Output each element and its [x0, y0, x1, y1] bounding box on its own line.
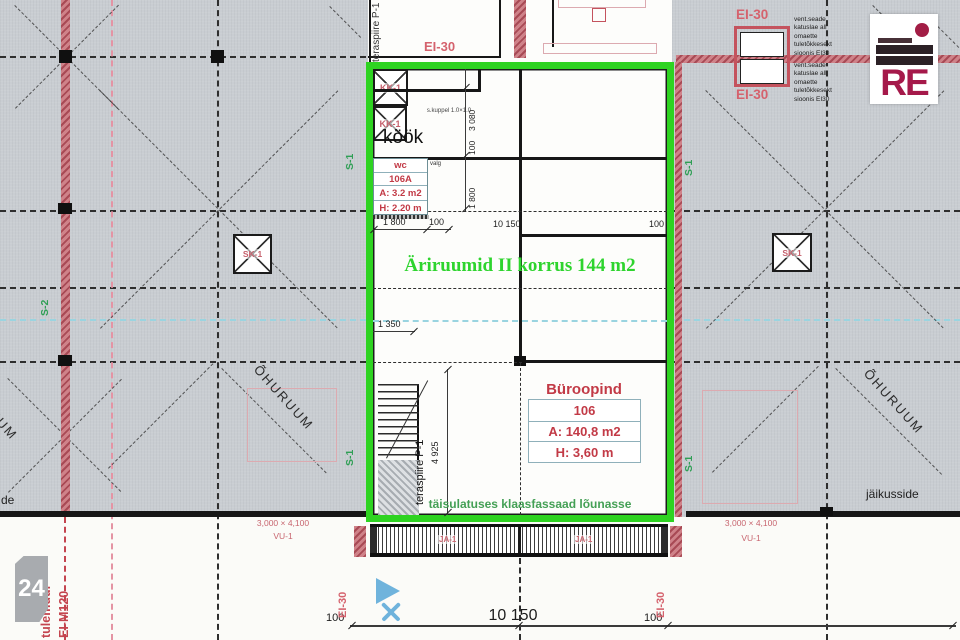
vent-note-line: tuletõkkesekt: [794, 87, 832, 95]
vent-note-line: katuslae all: [794, 24, 832, 32]
bracing-line: [329, 6, 361, 38]
facade-panel-label: JA-1: [574, 535, 593, 544]
facade-post: [370, 527, 377, 553]
utility-line-blue: [0, 319, 366, 321]
unit-data-box: 106 A: 140,8 m2 H: 3,60 m: [528, 399, 641, 463]
smoke-hatch-sk1: SK-1: [772, 233, 812, 272]
column: [211, 50, 224, 63]
staircase: [378, 384, 419, 515]
dimension-line: [373, 229, 451, 230]
facade-post: [661, 527, 668, 553]
vent-note: vent.seade katuslae all omaette tuletõkk…: [794, 62, 832, 104]
highlighted-unit: köök s.kuppel 1.0×1.0 KK-1 KK-1 wc 106A …: [366, 62, 674, 522]
axis-line-pink: [111, 0, 113, 640]
axis-line: [674, 210, 960, 212]
wall: [368, 56, 500, 58]
logo-bar: [878, 38, 912, 43]
fire-wall-rating: EI-M120: [58, 548, 71, 638]
facade-mullion: [518, 527, 521, 553]
smoke-hatch-sk1: SK-1: [233, 234, 272, 274]
bracing-line: [108, 363, 213, 468]
vent-note-line: omaette: [794, 79, 832, 87]
axis-label-s1: S-1: [684, 438, 695, 472]
railing-label: teraspiire P-1: [415, 387, 430, 505]
opening-outline: [702, 390, 798, 504]
company-logo: RE: [870, 14, 938, 104]
wc-label-box: wc 106A A: 3.2 m2 H: 2.20 m: [373, 158, 428, 215]
vent-note: vent.seade katuslae all omaette tuletõkk…: [794, 16, 832, 58]
sk1-label: SK-1: [781, 248, 802, 258]
fire-rating-label: EI-30: [338, 554, 349, 618]
wall: [0, 511, 366, 517]
dimension-line: [465, 69, 466, 211]
axis-line: [0, 361, 366, 363]
column: [820, 507, 833, 516]
window-type-label: VU-1: [258, 531, 308, 541]
page-number: 24: [18, 575, 45, 603]
vent-unit-cell: [740, 32, 784, 57]
bracing-line: [937, 26, 959, 48]
railing-label: teraspiire P-1: [372, 0, 386, 62]
axis-label-s1: S-1: [345, 432, 356, 466]
utility-line-blue: [674, 319, 960, 321]
wall: [499, 0, 501, 58]
fire-wall: [675, 62, 682, 517]
wc-title: wc: [374, 159, 427, 172]
dimension-text: 100: [468, 135, 477, 155]
vent-unit-box: [734, 26, 790, 87]
unit-number: 106: [529, 400, 640, 421]
fire-rating-label: EI-30: [736, 87, 768, 102]
logo-dot: [915, 23, 929, 37]
page-number-badge: 24: [15, 556, 48, 622]
fire-rating-label: EI-30: [424, 39, 455, 54]
axis-label-s1: S-1: [345, 136, 356, 170]
floor-plan-sheet: EI-30 teraspiire P-1 köök s.kuppel 1.0×1…: [0, 0, 960, 640]
vent-note-line: vent.seade: [794, 62, 832, 70]
wc-number: 106A: [374, 172, 427, 185]
window-size-label: 3,000 × 4,100: [712, 518, 790, 528]
wc-height: H: 2.20 m: [374, 200, 427, 215]
fire-wall: [514, 0, 526, 58]
wall: [522, 360, 667, 363]
sk1-label: SK-1: [242, 249, 263, 259]
axis-line: [674, 361, 960, 363]
unit-area-title: Äriruumid II korrus 144 m2: [373, 255, 667, 277]
dimension-line: [350, 625, 956, 627]
window-type-label: VU-1: [722, 533, 780, 543]
dimension-text: 100: [429, 218, 444, 227]
stiffening-tie-label: jäikusside: [866, 487, 919, 501]
vent-note-line: omaette: [794, 33, 832, 41]
vent-note-line: tuletõkkesekt: [794, 41, 832, 49]
fire-wall-stub: [670, 526, 682, 557]
axis-line: [520, 363, 521, 515]
dimension-text: 10 150: [493, 220, 521, 229]
facade-panel-label: JA-1: [438, 535, 457, 544]
column: [58, 355, 72, 366]
opening-outline: [543, 43, 657, 54]
stiffening-tie-label-cut: de: [1, 493, 14, 507]
vent-note-line: sioonis EI30: [794, 96, 832, 104]
fire-wall: [61, 0, 70, 517]
x-marker: [379, 601, 403, 623]
facade-note: täisulatuses klaasfassaad lõunasse: [393, 497, 667, 511]
unit-name: Büroopind: [523, 381, 645, 398]
axis-line: [674, 287, 960, 289]
axis-line: [0, 210, 366, 212]
dimension-text: 10 150: [458, 607, 568, 625]
opening-outline: [558, 0, 646, 8]
dimension-text: 100: [649, 220, 664, 229]
column: [58, 203, 72, 214]
logo-bar: [876, 45, 933, 54]
stair-steps: [378, 384, 419, 460]
axis-line: [373, 288, 667, 289]
dimension-tick: [444, 366, 452, 374]
axis-label-s1: S-1: [684, 142, 695, 176]
wc-area: A: 3.2 m2: [374, 185, 427, 200]
kitchen-label: köök: [383, 127, 423, 149]
dimension-text: 1 800: [468, 167, 477, 209]
fire-wall-stub: [354, 526, 366, 557]
dimension-text: 4 925: [431, 414, 440, 464]
axis-line: [373, 362, 522, 363]
utility-line-blue: [373, 320, 667, 322]
wall: [552, 0, 554, 47]
upper-room: EI-30 teraspiire P-1: [368, 0, 672, 63]
dimension-text: 3 080: [468, 87, 477, 131]
dimension-text: 1 350: [378, 320, 401, 329]
window-size-label: 3,000 × 4,100: [245, 518, 321, 528]
wc-light-note: valg: [430, 161, 441, 167]
axis-line: [217, 0, 219, 640]
unit-area: A: 140,8 m2: [529, 421, 640, 442]
wall: [478, 69, 481, 92]
wall: [522, 234, 667, 237]
axis-line: [0, 287, 366, 289]
dimension-line: [447, 369, 448, 515]
fire-rating-label: EI-30: [736, 7, 768, 22]
vent-unit-cell: [740, 59, 784, 84]
logo-text: RE: [873, 62, 935, 104]
axis-label-s2: S-2: [40, 268, 51, 316]
dimension-text: 1 800: [383, 218, 406, 227]
unit-height: H: 3,60 m: [529, 441, 640, 462]
wall: [519, 69, 522, 363]
vent-note-line: vent.seade: [794, 16, 832, 24]
dimension-line: [373, 331, 415, 332]
glass-facade: JA-1 JA-1: [370, 524, 668, 557]
column: [59, 50, 72, 63]
vent-note-line: sioonis EI30: [794, 50, 832, 58]
axis-line: [519, 558, 521, 640]
smoke-dome-kk1: KK-1: [373, 69, 408, 106]
shaft-outline: [592, 8, 606, 22]
vent-note-line: katuslae all: [794, 70, 832, 78]
axis-line: [0, 56, 366, 58]
fire-rating-label: EI-30: [656, 554, 667, 618]
